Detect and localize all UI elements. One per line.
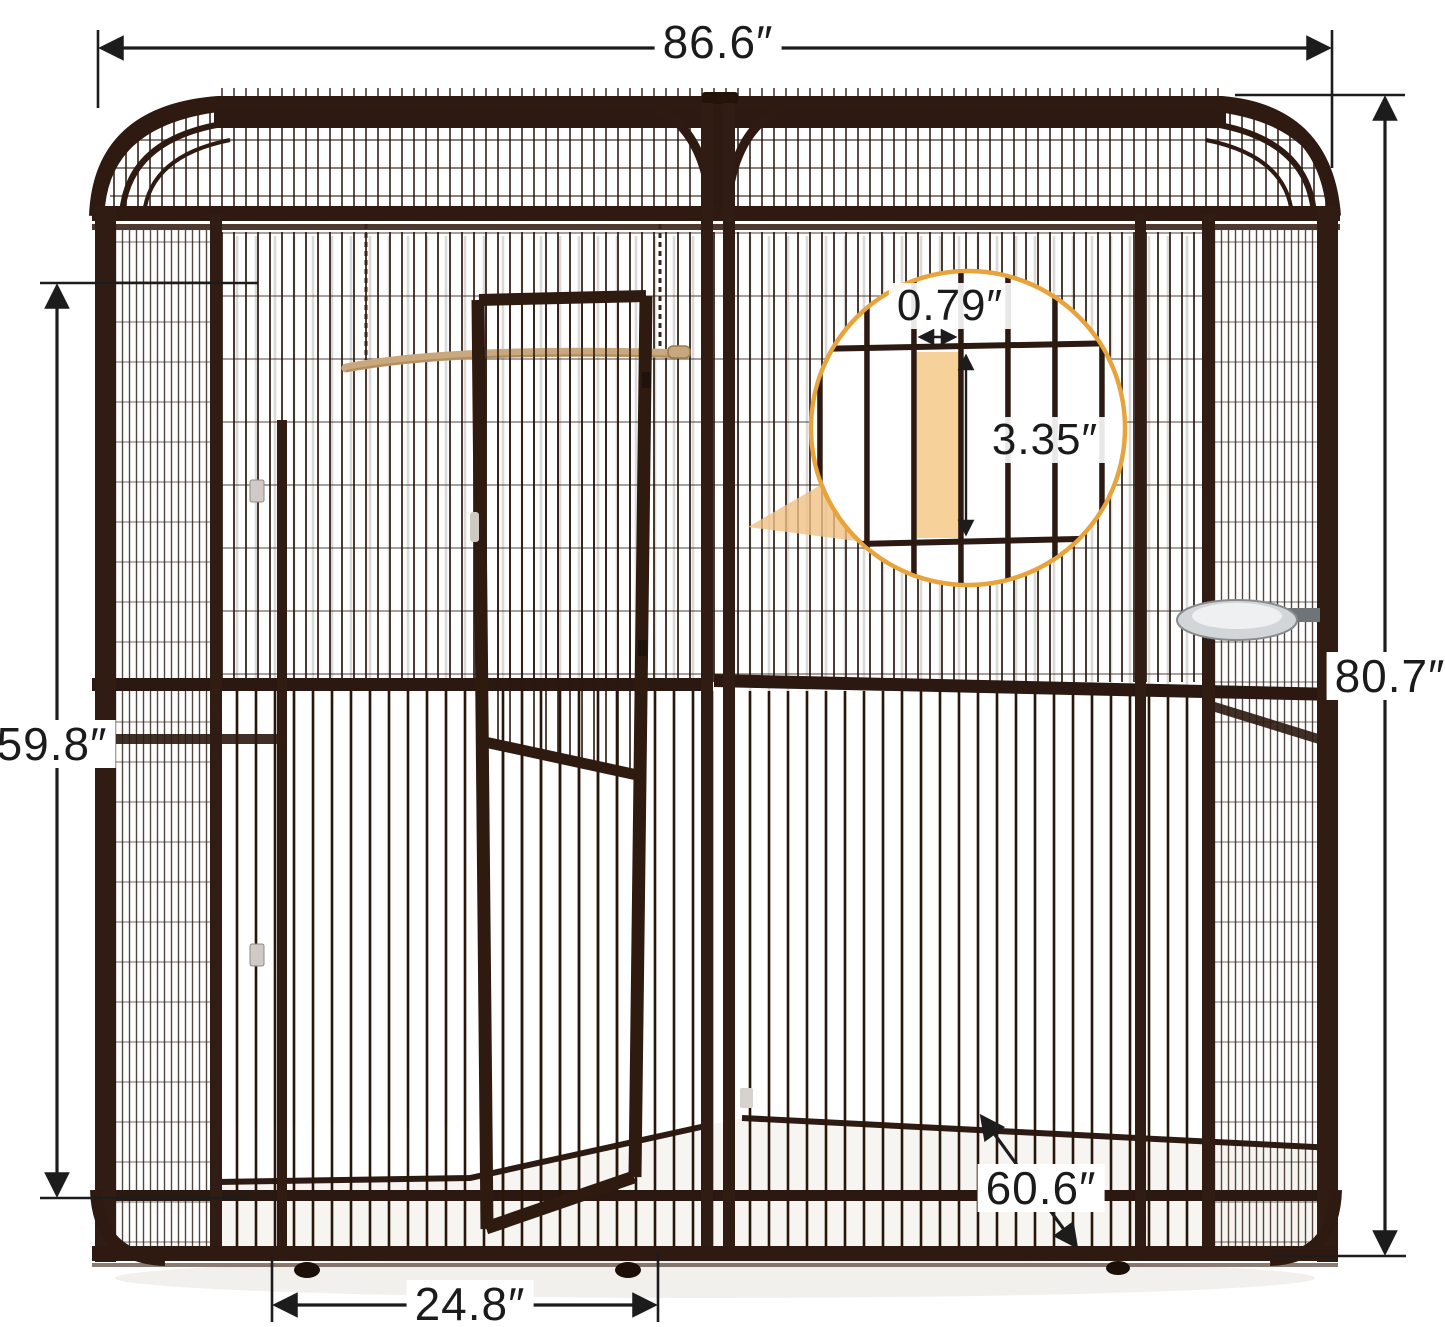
cell-height-label: 3.35″ [984, 417, 1106, 463]
door-catch [740, 1088, 753, 1108]
dim-depth-label: 60.6″ [978, 1164, 1105, 1212]
foot [1106, 1261, 1130, 1275]
dim-side-height-label: 59.8″ [0, 720, 115, 768]
product-dimension-diagram: 86.6″ 80.7″ 59.8″ 24.8″ 60.6″ 0.79″ 3.35… [0, 0, 1445, 1327]
highlight-cell [914, 352, 959, 538]
foot [294, 1262, 320, 1278]
door-handle [470, 512, 479, 542]
latch-top [250, 480, 264, 502]
dim-height-label: 80.7″ [1327, 652, 1445, 700]
cage-illustration [0, 0, 1445, 1327]
latch-bottom [250, 944, 264, 966]
dim-door-width-label: 24.8″ [407, 1280, 534, 1327]
door [470, 296, 651, 1229]
bar-gap-label: 0.79″ [889, 283, 1011, 329]
dim-width-label: 86.6″ [655, 18, 782, 66]
roof [96, 88, 1338, 216]
door-hinge-bottom [638, 640, 647, 656]
foot [615, 1262, 641, 1278]
door-hinge-top [642, 372, 651, 388]
